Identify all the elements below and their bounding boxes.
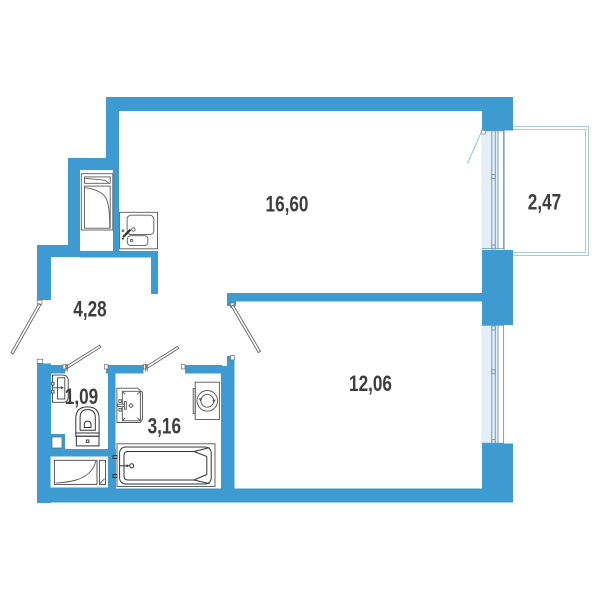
svg-text:16,60: 16,60 bbox=[266, 193, 309, 218]
svg-text:12,06: 12,06 bbox=[349, 372, 392, 397]
svg-text:1,09: 1,09 bbox=[65, 385, 98, 410]
svg-text:2,47: 2,47 bbox=[528, 191, 561, 216]
svg-text:3,16: 3,16 bbox=[148, 414, 181, 439]
svg-text:4,28: 4,28 bbox=[73, 297, 106, 322]
